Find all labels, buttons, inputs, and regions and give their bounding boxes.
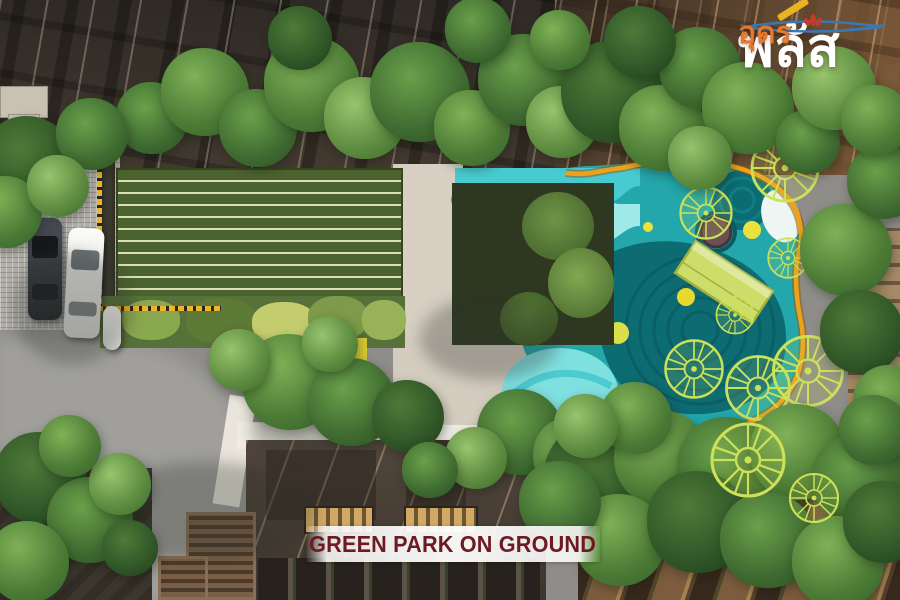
render-canvas: พลัส อุดร GREEN PARK ON GROUND bbox=[0, 0, 900, 600]
lotus-icon bbox=[803, 14, 824, 27]
logo-text-secondary: อุดร bbox=[738, 18, 792, 50]
project-logo: พลัส อุดร bbox=[738, 18, 900, 136]
caption-banner: GREEN PARK ON GROUND bbox=[306, 526, 600, 562]
caption-text: GREEN PARK ON GROUND bbox=[310, 531, 597, 558]
